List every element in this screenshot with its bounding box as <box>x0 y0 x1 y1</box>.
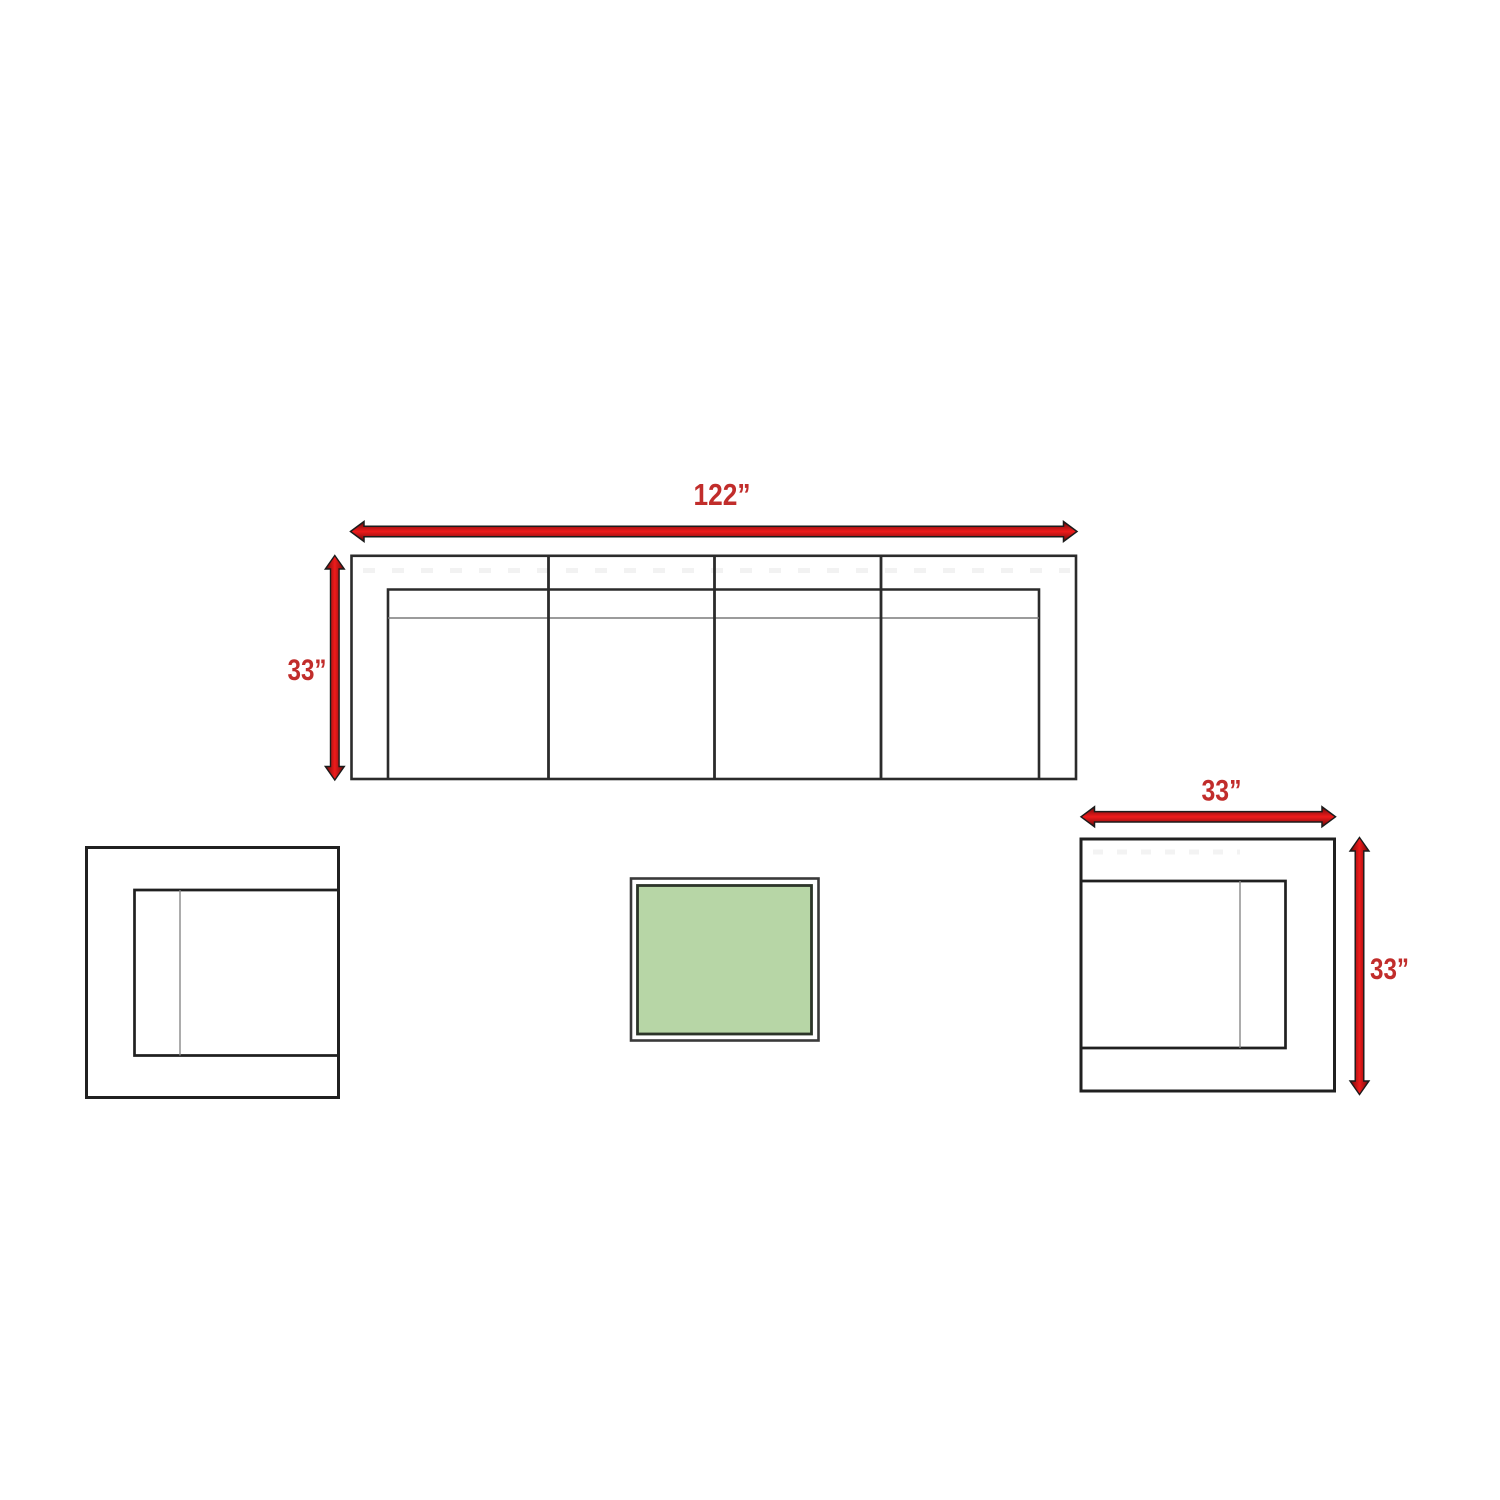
svg-text:122”: 122” <box>694 477 751 512</box>
svg-text:33”: 33” <box>288 654 327 687</box>
svg-text:33”: 33” <box>1370 953 1409 986</box>
svg-text:33”: 33” <box>1202 775 1242 808</box>
